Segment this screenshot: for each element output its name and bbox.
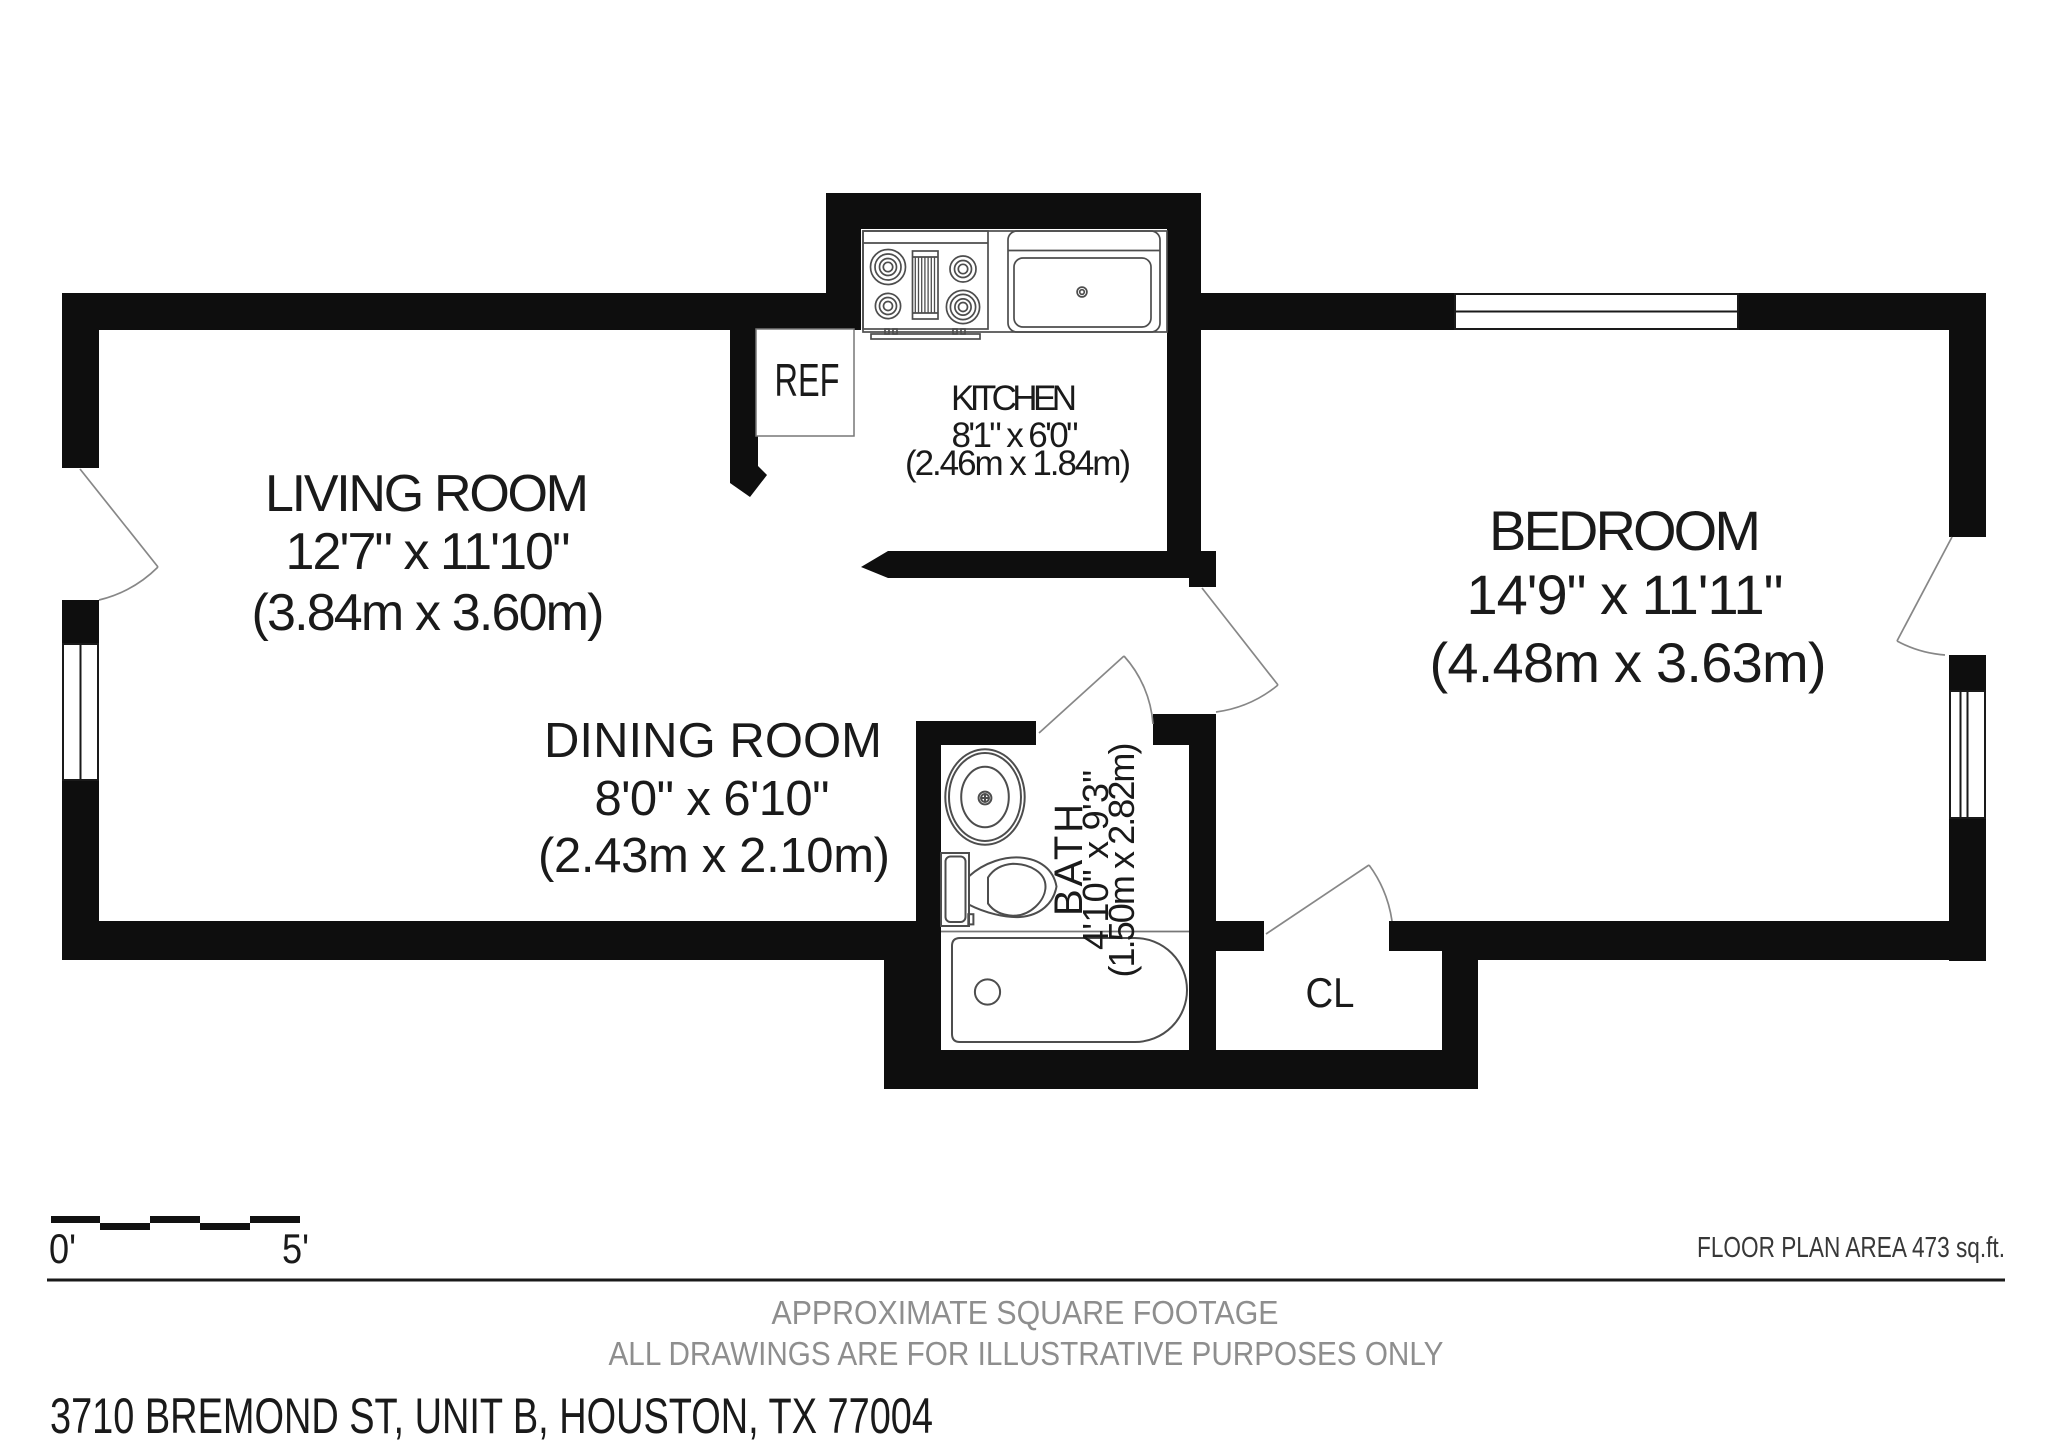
svg-text:(4.48m x 3.63m): (4.48m x 3.63m): [1430, 631, 1827, 694]
svg-text:REF: REF: [775, 354, 840, 406]
svg-text:APPROXIMATE SQUARE FOOTAGE: APPROXIMATE SQUARE FOOTAGE: [772, 1295, 1279, 1332]
svg-text:0': 0': [49, 1225, 76, 1272]
svg-text:KITCHEN: KITCHEN: [951, 379, 1077, 418]
svg-text:12'7" x 11'10": 12'7" x 11'10": [286, 523, 571, 581]
svg-text:8'0" x 6'10": 8'0" x 6'10": [595, 772, 830, 826]
svg-text:LIVING ROOM: LIVING ROOM: [265, 465, 589, 523]
svg-text:3710 BREMOND ST, UNIT B, HOUST: 3710 BREMOND ST, UNIT B, HOUSTON, TX 770…: [50, 1388, 933, 1444]
svg-text:5': 5': [282, 1225, 309, 1272]
svg-text:BEDROOM: BEDROOM: [1489, 499, 1761, 562]
svg-text:(3.84m x 3.60m): (3.84m x 3.60m): [252, 584, 605, 642]
svg-text:14'9" x 11'11": 14'9" x 11'11": [1467, 563, 1784, 626]
svg-text:DINING ROOM: DINING ROOM: [544, 714, 882, 768]
svg-text:CL: CL: [1306, 969, 1355, 1016]
svg-text:FLOOR PLAN AREA 473 sq.ft.: FLOOR PLAN AREA 473 sq.ft.: [1697, 1232, 2005, 1264]
svg-text:(2.46m x 1.84m): (2.46m x 1.84m): [905, 444, 1131, 483]
svg-text:(1.50m x 2.82m): (1.50m x 2.82m): [1101, 743, 1142, 978]
svg-text:(2.43m x 2.10m): (2.43m x 2.10m): [538, 829, 890, 883]
svg-text:ALL DRAWINGS ARE FOR ILLUSTRAT: ALL DRAWINGS ARE FOR ILLUSTRATIVE PURPOS…: [609, 1336, 1444, 1373]
